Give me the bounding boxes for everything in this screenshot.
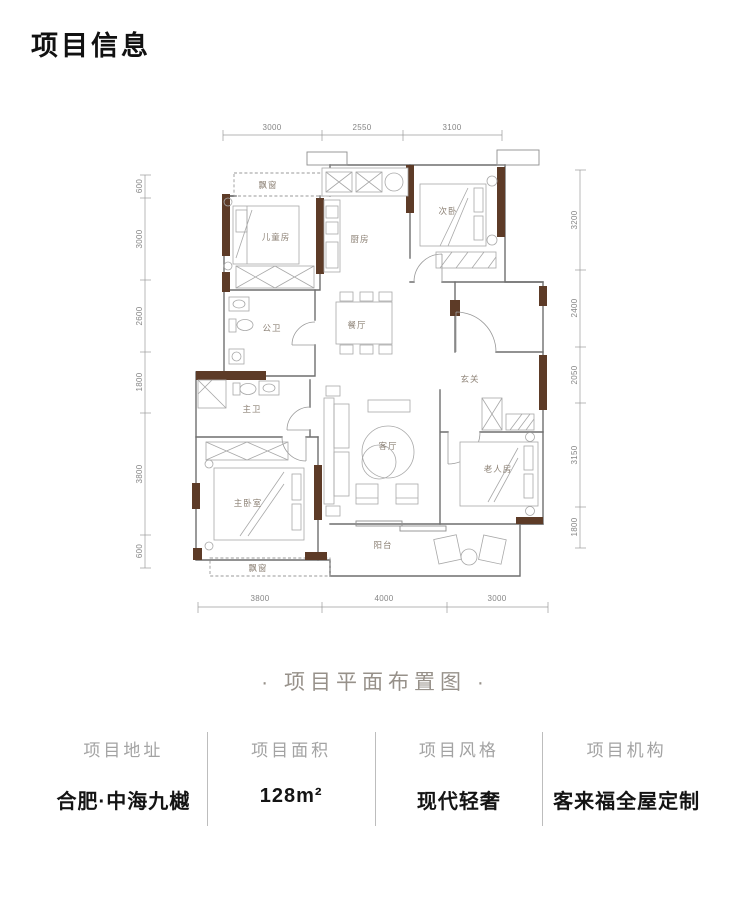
footer-info: 项目地址 合肥·中海九樾 项目面积 128m² 项目风格 现代轻奢 项目机构 客… [40, 732, 710, 826]
footer-label-area: 项目面积 [208, 736, 375, 761]
room-label-master-bedroom: 主卧室 [234, 498, 263, 508]
room-label-master-bath: 主卫 [242, 404, 261, 414]
footer-value-address: 合肥·中海九樾 [40, 785, 207, 814]
dim-right-3: 2050 [570, 365, 579, 384]
dim-right-4: 3150 [570, 445, 579, 464]
footer-label-address: 项目地址 [40, 736, 207, 761]
dim-top-2: 2550 [353, 123, 372, 132]
dimensions-top: 3000 2550 3100 [223, 123, 502, 141]
dimensions-bottom: 3800 4000 3000 [198, 594, 548, 613]
room-label-dining: 餐厅 [347, 320, 366, 330]
dim-left-3: 2600 [135, 306, 144, 325]
floorplan-svg: 3000 2550 3100 3800 4000 3000 600 3000 2… [115, 110, 595, 615]
page-title: 项目信息 [31, 24, 151, 63]
footer-col-style: 项目风格 现代轻奢 [375, 732, 543, 826]
dim-left-5: 3800 [135, 464, 144, 483]
room-label-kitchen: 厨房 [350, 234, 369, 244]
dimensions-left: 600 3000 2600 1800 3800 600 [135, 175, 151, 568]
room-label-foyer: 玄关 [460, 374, 479, 384]
dim-bottom-2: 4000 [375, 594, 394, 603]
dim-left-2: 3000 [135, 229, 144, 248]
dim-right-2: 2400 [570, 298, 579, 317]
dim-right-5: 1800 [570, 517, 579, 536]
dim-right-1: 3200 [570, 210, 579, 229]
room-label-second-bedroom: 次卧 [438, 206, 457, 216]
room-label-bay-top: 飘窗 [258, 180, 277, 190]
dim-left-4: 1800 [135, 372, 144, 391]
footer-label-organization: 项目机构 [543, 736, 710, 761]
footer-value-area: 128m² [208, 785, 375, 808]
footer-value-organization: 客来福全屋定制 [543, 785, 710, 814]
footer-col-area: 项目面积 128m² [207, 732, 375, 826]
floorplan: 3000 2550 3100 3800 4000 3000 600 3000 2… [115, 110, 595, 615]
footer-label-style: 项目风格 [376, 736, 543, 761]
dim-top-3: 3100 [443, 123, 462, 132]
dimensions-right: 3200 2400 2050 3150 1800 [570, 170, 586, 548]
dim-bottom-3: 3000 [488, 594, 507, 603]
room-label-living: 客厅 [378, 441, 397, 451]
footer-value-style: 现代轻奢 [376, 785, 543, 814]
room-label-children: 儿童房 [262, 232, 291, 242]
dim-left-1: 600 [135, 179, 144, 193]
footer-col-address: 项目地址 合肥·中海九樾 [40, 732, 207, 826]
room-label-balcony: 阳台 [373, 540, 392, 550]
dim-top-1: 3000 [263, 123, 282, 132]
room-label-bay-bottom: 飘窗 [248, 563, 267, 573]
plan-caption: · 项目平面布置图 · [0, 666, 750, 696]
room-label-elder: 老人房 [484, 464, 513, 474]
dim-bottom-1: 3800 [251, 594, 270, 603]
dim-left-6: 600 [135, 544, 144, 558]
room-label-public-bath: 公卫 [262, 323, 281, 333]
footer-col-organization: 项目机构 客来福全屋定制 [542, 732, 710, 826]
